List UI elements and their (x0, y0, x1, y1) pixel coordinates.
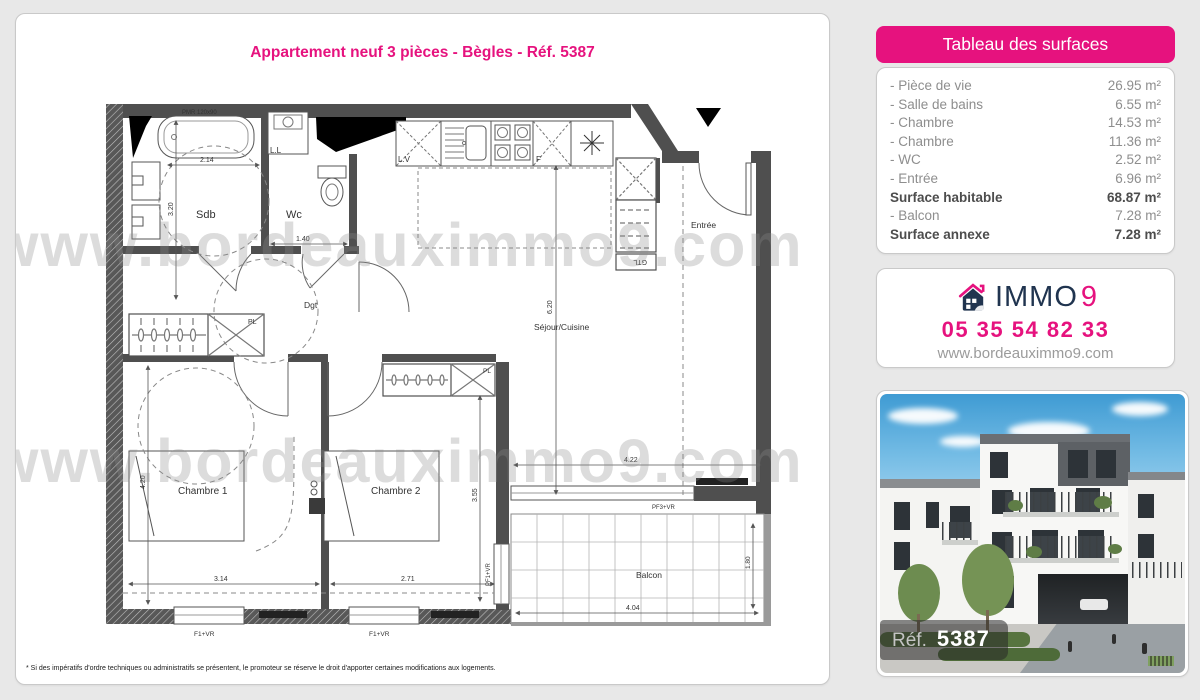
surface-label: - WC (890, 151, 921, 170)
surface-row: - Entrée6.96 m² (890, 170, 1161, 189)
brand-immo-text: IMMO (995, 281, 1078, 314)
page-title: Appartement neuf 3 pièces - Bègles - Réf… (16, 44, 829, 62)
brand-9-text: 9 (1081, 281, 1097, 314)
surface-value: 7.28 m² (1115, 207, 1161, 226)
surface-value: 11.36 m² (1109, 133, 1161, 152)
tree (962, 544, 1014, 616)
dim-wc-w: 1.40 (296, 236, 310, 243)
label-lv: L.V (398, 155, 411, 164)
floor-plan-card: Appartement neuf 3 pièces - Bègles - Réf… (15, 13, 830, 685)
bathtub (158, 116, 254, 158)
label-entree: Entrée (691, 220, 716, 230)
dim-balcon-w: 4.04 (626, 605, 640, 612)
surface-value: 14.53 m² (1108, 114, 1161, 133)
surface-label: - Balcon (890, 207, 940, 226)
label-wc: Wc (286, 209, 302, 221)
surface-label: - Pièce de vie (890, 77, 972, 96)
cloud (1112, 402, 1168, 416)
building-photo-card: Réf. 5387 (876, 390, 1189, 677)
building-right (1128, 472, 1185, 644)
surface-label: - Chambre (890, 133, 954, 152)
dim-balcon-d: 1.80 (745, 556, 752, 569)
ref-number: 5387 (937, 626, 990, 652)
dim-sdb-h: 3.20 (168, 202, 175, 216)
label-gtl: GTL (633, 258, 647, 265)
grate (1148, 656, 1174, 666)
label-pl2: PL (483, 368, 491, 375)
surface-row: - WC2.52 m² (890, 151, 1161, 170)
surface-value: 6.96 m² (1115, 170, 1161, 189)
label-window-ch2: F1+VR (369, 631, 390, 638)
label-f: F (536, 155, 541, 164)
agency-panel: IMMO9 05 35 54 82 33 www.bordeauximmo9.c… (876, 268, 1175, 368)
surface-label: - Chambre (890, 114, 954, 133)
dim-ch2-w: 2.71 (401, 576, 415, 583)
toilet (318, 166, 346, 206)
dim-sejour-w: 4.22 (624, 457, 638, 464)
label-pmr: PMR 120x90 (182, 110, 217, 116)
label-sdb: Sdb (196, 209, 216, 221)
entrance-marker-icon (696, 108, 721, 127)
surface-value: 7.28 m² (1114, 226, 1161, 245)
closet-pl2 (383, 364, 495, 396)
shaft-left (129, 116, 152, 158)
closet-pl1 (129, 314, 264, 356)
kitchen-units (396, 121, 613, 248)
surface-value: 26.95 m² (1108, 77, 1161, 96)
house-icon (954, 280, 992, 314)
label-window-balcon-door: PF1+VR (486, 562, 492, 586)
label-chambre1: Chambre 1 (178, 486, 228, 497)
dim-ch2-h: 3.55 (472, 488, 479, 502)
dim-ch1-w: 3.14 (214, 576, 228, 583)
surface-row: - Chambre11.36 m² (890, 133, 1161, 152)
surface-value: 2.52 m² (1115, 151, 1161, 170)
label-window-sejour: PF3+VR (652, 505, 676, 511)
surfaces-table: - Pièce de vie26.95 m² - Salle de bains6… (876, 67, 1175, 254)
label-chambre2: Chambre 2 (371, 486, 421, 497)
shaft-kitchen (316, 117, 406, 152)
disclaimer-text: * Si des impératifs d'ordre techniques o… (26, 665, 496, 672)
surface-row-total-habitable: Surface habitable68.87 m² (890, 189, 1161, 208)
surface-label: Surface annexe (890, 226, 990, 245)
floor-plan-svg: Sdb Wc Dgt Entrée Séjour/Cuisine Chambre… (96, 96, 796, 656)
ref-label: Réf. (892, 630, 927, 652)
surface-value: 6.55 m² (1115, 96, 1161, 115)
building-right-roof (1128, 472, 1185, 480)
label-balcon: Balcon (636, 570, 662, 580)
dim-sejour-h: 6.20 (547, 300, 554, 314)
label-pl1: PL (248, 319, 257, 326)
surface-label: - Entrée (890, 170, 938, 189)
building-photo: Réf. 5387 (880, 394, 1185, 673)
surface-value: 68.87 m² (1107, 189, 1161, 208)
building-left-roof (880, 479, 980, 488)
label-sejour: Séjour/Cuisine (534, 322, 590, 332)
label-window-ch1: F1+VR (194, 631, 215, 638)
cloud (888, 408, 958, 424)
surface-row: - Chambre14.53 m² (890, 114, 1161, 133)
surface-row: - Balcon7.28 m² (890, 207, 1161, 226)
dim-ch1-h: 4.20 (140, 475, 147, 489)
agency-phone: 05 35 54 82 33 (877, 317, 1174, 343)
page: { "page": { "title": "Appartement neuf 3… (0, 0, 1200, 700)
entry-closet (616, 158, 656, 270)
label-dgt: Dgt (304, 300, 318, 310)
agency-logo: IMMO9 (877, 278, 1174, 316)
agency-website: www.bordeauximmo9.com (877, 345, 1174, 362)
washbasins (132, 162, 160, 239)
surfaces-table-header: Tableau des surfaces (876, 26, 1175, 63)
car (1080, 599, 1108, 610)
surface-label: Surface habitable (890, 189, 1003, 208)
surface-row-total-annexe: Surface annexe7.28 m² (890, 226, 1161, 245)
dim-sdb-w: 2.14 (200, 157, 214, 164)
surface-label: - Salle de bains (890, 96, 983, 115)
surface-row: - Pièce de vie26.95 m² (890, 77, 1161, 96)
label-ll: L.L (270, 146, 282, 155)
ref-badge: Réf. 5387 (880, 620, 1008, 660)
surface-row: - Salle de bains6.55 m² (890, 96, 1161, 115)
